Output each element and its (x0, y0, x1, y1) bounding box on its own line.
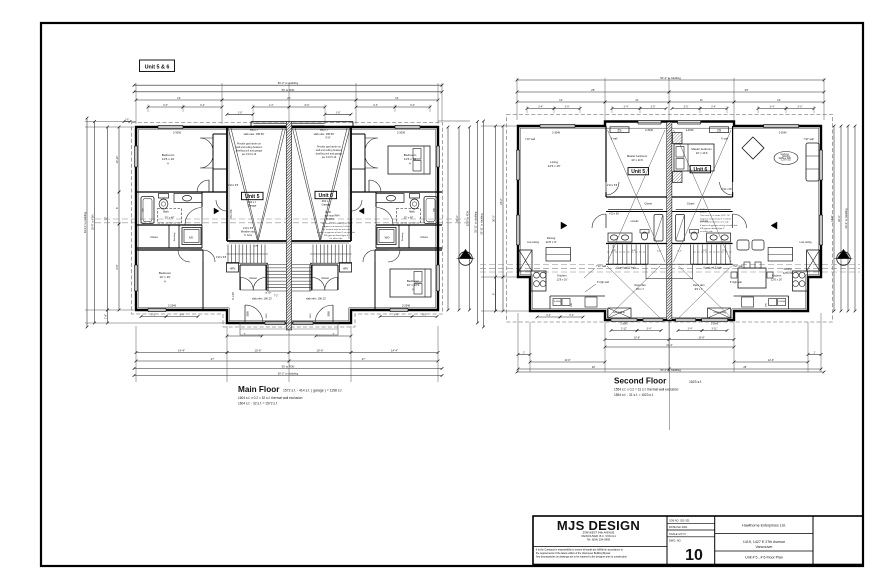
svg-text:6' wall: 6' wall (721, 138, 728, 141)
svg-text:per 9.10.9.16: per 9.10.9.16 (322, 156, 337, 159)
svg-text:12'6 x 16': 12'6 x 16' (771, 277, 782, 281)
svg-text:16 Ra: 16 Ra (700, 209, 707, 211)
svg-text:33'-2" to cladding: 33'-2" to cladding (844, 208, 848, 228)
svg-text:12'6 x 15': 12'6 x 15' (548, 164, 561, 168)
svg-text:14': 14' (395, 96, 399, 100)
svg-text:3'-0": 3'-0" (410, 104, 415, 107)
svg-text:2-3040: 2-3040 (645, 129, 653, 132)
svg-text:1572 s.f. - 414 s.f. ( garage: 1572 s.f. - 414 s.f. ( garage ) = 1158 s… (283, 389, 342, 393)
svg-text:12'6 x 10': 12'6 x 10' (778, 156, 791, 160)
svg-text:2'6 x 6'8: 2'6 x 6'8 (230, 209, 233, 218)
svg-text:Low ceiling: Low ceiling (613, 312, 625, 314)
svg-text:27': 27' (362, 357, 366, 361)
svg-text:10'-8": 10'-8" (634, 337, 640, 340)
svg-text:Garage: Garage (322, 202, 331, 206)
svg-text:1'-6": 1'-6" (125, 120, 130, 122)
svg-text:14': 14' (559, 98, 563, 102)
svg-text:Guard rail 3' high: Guard rail 3' high (703, 267, 723, 270)
svg-text:3068: 3068 (247, 311, 250, 317)
svg-text:5'-8": 5'-8" (703, 250, 707, 252)
svg-text:10'-6": 10'-6" (254, 349, 261, 353)
svg-text:JOB NO. 021-301: JOB NO. 021-301 (669, 518, 690, 522)
svg-text:Unit 6: Unit 6 (693, 167, 707, 173)
svg-text:6' high wall: 6' high wall (730, 281, 742, 284)
svg-text:Unit # 5 , # 6 Floor Plan: Unit # 5 , # 6 Floor Plan (745, 556, 783, 560)
svg-text:11'6 x 10: 11'6 x 10 (162, 157, 175, 161)
svg-text:3'-4": 3'-4" (569, 314, 574, 317)
svg-text:2'10 x 6'8: 2'10 x 6'8 (607, 184, 618, 187)
svg-text:9'-8": 9'-8" (326, 137, 331, 140)
svg-text:32': 32' (103, 216, 107, 220)
svg-text:25': 25' (591, 88, 595, 92)
svg-text:Bath: Bath (163, 210, 169, 214)
svg-text:50'-2" to cladding: 50'-2" to cladding (278, 372, 299, 376)
svg-text:HRV: HRV (343, 267, 349, 271)
svg-text:14': 14' (177, 96, 181, 100)
svg-text:2-3036: 2-3036 (397, 131, 406, 135)
svg-text:4'10 x 6'8: 4'10 x 6'8 (609, 214, 619, 216)
svg-text:492 s.f.: 492 s.f. (248, 200, 257, 204)
svg-text:3'-4": 3'-4" (770, 106, 775, 109)
svg-text:1604 s.f. x 0.2 = 32 s.f. ther: 1604 s.f. x 0.2 = 32 s.f. thermal wall e… (238, 396, 303, 400)
svg-text:2-3040: 2-3040 (620, 324, 628, 326)
svg-text:1554 s.f. - 31 s.f. = 1523 s.f: 1554 s.f. - 31 s.f. = 1523 s.f. (614, 393, 654, 397)
svg-text:9'6 x 7: 9'6 x 7 (636, 287, 644, 291)
svg-text:Dining: Dining (784, 267, 792, 271)
svg-text:Closet: Closet (687, 202, 695, 206)
svg-text:33'-11" to cladding: 33'-11" to cladding (83, 211, 87, 233)
svg-text:9'-6": 9'-6" (116, 264, 119, 269)
svg-text:50' to FDN: 50' to FDN (282, 88, 295, 92)
svg-text:10' x 11'6: 10' x 11'6 (631, 158, 643, 162)
svg-text:1000: 1000 (266, 313, 268, 319)
svg-text:3'-4": 3'-4" (546, 314, 551, 317)
svg-text:11': 11' (700, 98, 704, 102)
svg-text:3'-0": 3'-0" (798, 106, 803, 109)
svg-text:VANCOUVER, B.C. V6N 2L1: VANCOUVER, B.C. V6N 2L1 (581, 534, 616, 538)
svg-text:3'-4": 3'-4" (373, 104, 378, 107)
svg-text:1523 s.f.: 1523 s.f. (689, 380, 702, 384)
svg-text:2-3048: 2-3048 (552, 132, 560, 135)
svg-text:21'-4": 21'-4" (666, 344, 672, 347)
svg-text:2'-6": 2'-6" (104, 314, 107, 319)
svg-text:3'-5": 3'-5" (651, 106, 656, 109)
svg-text:10'-8": 10'-8" (698, 337, 704, 340)
svg-text:Unit 5: Unit 5 (245, 194, 260, 200)
svg-text:30" x 48": 30" x 48" (165, 217, 175, 220)
svg-text:Bath: Bath (409, 210, 415, 214)
svg-text:on other side: on other side (700, 230, 713, 233)
svg-text:6' high wall: 6' high wall (597, 281, 609, 284)
svg-text:12'6 x 16': 12'6 x 16' (557, 277, 568, 281)
svg-text:slab elev. 195.50': slab elev. 195.50' (244, 132, 265, 136)
svg-text:W/D: W/D (385, 237, 390, 240)
svg-text:5'-8": 5'-8" (632, 250, 636, 252)
svg-text:1554 s.f. x 0.2 = 31 s.f. ther: 1554 s.f. x 0.2 = 31 s.f. thermal wall e… (614, 388, 679, 392)
svg-text:Unit 5: Unit 5 (631, 169, 645, 175)
svg-text:24'-2": 24'-2" (500, 198, 503, 204)
svg-text:Second Floor: Second Floor (614, 377, 667, 386)
svg-text:50 5°C: 50 5°C (700, 212, 707, 214)
svg-text:Main Floor: Main Floor (238, 385, 280, 394)
svg-text:2-3040: 2-3040 (711, 324, 719, 326)
svg-text:Hawthorne Enterprises Ltd.: Hawthorne Enterprises Ltd. (742, 524, 786, 528)
svg-text:50' to FDN: 50' to FDN (282, 365, 295, 369)
svg-text:3-3036: 3-3036 (778, 301, 786, 303)
svg-text:ensure in gypsum of two 9' on: ensure in gypsum of two 9' on one side (317, 231, 356, 234)
svg-text:one hour RH4: one hour RH4 (325, 214, 341, 217)
svg-text:2.5" mineral wool on one side: 2.5" mineral wool on one side (700, 221, 729, 224)
svg-text:3'-4": 3'-4" (647, 328, 652, 331)
svg-text:7'10" wall: 7'10" wall (804, 138, 815, 141)
svg-text:3068: 3068 (328, 311, 331, 317)
svg-text:10: 10 (685, 547, 703, 564)
svg-text:A/D: A/D (189, 237, 193, 240)
svg-text:on other side: on other side (330, 237, 343, 240)
svg-text:2S: 2S (717, 129, 722, 133)
svg-text:diagonal cut armoury 1x2mb: diagonal cut armoury 1x2mb (322, 225, 350, 228)
svg-text:2'10 x 6'8: 2'10 x 6'8 (722, 188, 733, 191)
svg-text:Garage: Garage (248, 203, 257, 207)
svg-text:Unit 5 & 6: Unit 5 & 6 (145, 64, 170, 70)
svg-text:S. Core: S. Core (244, 234, 253, 237)
svg-text:3'-0": 3'-0" (565, 106, 570, 109)
svg-text:28': 28' (592, 366, 596, 369)
svg-text:1'-6": 1'-6" (336, 111, 341, 114)
svg-text:22': 22' (287, 96, 291, 100)
svg-text:10' x 10'9: 10' x 10'9 (407, 283, 420, 287)
svg-text:Closet: Closet (644, 202, 652, 206)
svg-text:Two treat 2 x 4 studs @16" oc: Two treat 2 x 4 studs @16" oc (321, 222, 351, 225)
svg-text:3'-11": 3'-11" (712, 328, 718, 331)
svg-text:DATE Feb 2021: DATE Feb 2021 (669, 525, 688, 529)
svg-text:Tel: (604) 254-0995: Tel: (604) 254-0995 (587, 537, 611, 541)
svg-text:4 layers of gypsum ceiling of: 4 layers of gypsum ceiling of white bds (700, 224, 738, 227)
svg-text:32'-9" to FDN: 32'-9" to FDN (465, 211, 469, 227)
svg-text:2'10 x 6'8: 2'10 x 6'8 (228, 184, 239, 187)
svg-text:2-2546: 2-2546 (168, 304, 177, 308)
svg-text:14'-4": 14'-4" (178, 349, 185, 353)
svg-text:DWG. NO.: DWG. NO. (669, 539, 682, 543)
svg-text:50'-2" to cladding: 50'-2" to cladding (660, 368, 681, 372)
svg-text:8'6 x 7: 8'6 x 7 (250, 128, 258, 132)
svg-text:2.5' mineral wool on one side: 2.5' mineral wool on one side (322, 228, 351, 231)
svg-text:SCALE 1/4"=1': SCALE 1/4"=1' (669, 532, 687, 536)
svg-text:10' x 11'6: 10' x 11'6 (696, 151, 708, 155)
svg-text:12'-6": 12'-6" (768, 359, 774, 362)
svg-text:Kitchen: Kitchen (557, 274, 567, 278)
svg-text:♾: ♾ (167, 162, 170, 166)
svg-text:Vancouver: Vancouver (756, 545, 774, 549)
svg-text:492 s.f.: 492 s.f. (322, 199, 331, 203)
svg-text:1'-4": 1'-4" (269, 104, 274, 107)
svg-text:18,757: 18,757 (265, 293, 272, 295)
svg-text:6' x 6'8: 6' x 6'8 (232, 292, 235, 300)
svg-text:2-3036: 2-3036 (173, 131, 182, 135)
svg-text:12'-6": 12'-6" (564, 359, 570, 362)
svg-text:3'-4": 3'-4" (711, 106, 716, 109)
svg-text:2-3040: 2-3040 (779, 132, 787, 135)
svg-text:Low ceiling: Low ceiling (800, 241, 812, 244)
svg-text:♾: ♾ (409, 162, 412, 166)
svg-text:1 low ceiling: 1 low ceiling (713, 312, 726, 314)
svg-text:5/8 gypsum board type X: 5/8 gypsum board type X (324, 234, 349, 237)
svg-text:3'-11": 3'-11" (621, 328, 627, 331)
svg-text:50'-2" to cladding: 50'-2" to cladding (660, 76, 681, 80)
svg-text:7'-2": 7'-2" (274, 296, 279, 298)
svg-text:Closet: Closet (321, 276, 329, 280)
svg-text:B/B: B/B (143, 208, 145, 212)
svg-text:Closet: Closet (249, 276, 257, 280)
svg-text:10' x 10': 10' x 10' (160, 275, 171, 279)
svg-text:7'10" wall: 7'10" wall (596, 265, 607, 268)
svg-text:12'6 x 9': 12'6 x 9' (783, 271, 793, 275)
svg-text:14'-4": 14'-4" (391, 349, 398, 353)
svg-text:♾: ♾ (164, 280, 167, 284)
svg-text:HRV: HRV (230, 267, 236, 271)
svg-text:10'-10": 10'-10" (116, 156, 119, 164)
svg-text:18R: 18R (254, 246, 258, 248)
svg-text:Two treat 2 x 4 studs @16" OC: Two treat 2 x 4 studs @16" OC (700, 214, 731, 217)
svg-text:Washing: Washing (174, 232, 176, 241)
svg-text:33'-11" to cladding: 33'-11" to cladding (473, 211, 477, 233)
svg-text:slab elev. 195.50': slab elev. 195.50' (314, 132, 335, 136)
svg-text:5/8 gypsum board type X: 5/8 gypsum board type X (700, 227, 725, 230)
svg-text:33'-9" to FDN: 33'-9" to FDN (90, 214, 94, 230)
svg-text:1'-6": 1'-6" (238, 111, 243, 114)
svg-text:50'-2" to cladding: 50'-2" to cladding (278, 81, 299, 85)
svg-text:diagonal cut armoury 3 x 5 pla: diagonal cut armoury 3 x 5 plate (700, 217, 732, 220)
svg-text:Washing: Washing (402, 232, 404, 241)
svg-text:14': 14' (777, 98, 781, 102)
svg-text:Low ceiling: Low ceiling (527, 241, 539, 244)
svg-text:12'6 x 9': 12'6 x 9' (546, 240, 557, 244)
svg-text:Closet: Closet (150, 235, 158, 239)
svg-text:1000: 1000 (310, 313, 312, 319)
svg-text:36 BTC: 36 BTC (326, 218, 334, 221)
svg-text:8'-6": 8'-6" (305, 104, 310, 107)
svg-text:per 9.10.9.16: per 9.10.9.16 (242, 153, 257, 156)
svg-text:33'-11" to cladding: 33'-11" to cladding (479, 213, 483, 235)
svg-text:30'-2": 30'-2" (837, 215, 841, 222)
svg-text:Open den: Open den (634, 283, 646, 287)
svg-text:3'-4": 3'-4" (200, 104, 205, 107)
svg-text:Kitchen: Kitchen (772, 274, 782, 278)
svg-text:30'-2": 30'-2" (491, 215, 495, 222)
svg-text:Unit 6: Unit 6 (318, 193, 333, 199)
svg-text:30'-2": 30'-2" (455, 215, 459, 222)
svg-text:11'6 x 10: 11'6 x 10 (404, 157, 417, 161)
svg-text:25': 25' (745, 88, 749, 92)
svg-text:♾: ♾ (412, 288, 415, 292)
svg-text:3'-4": 3'-4" (538, 106, 543, 109)
svg-text:27': 27' (211, 357, 215, 361)
svg-text:1604 s.f. - 32 s.f. = 1572 s.f: 1604 s.f. - 32 s.f. = 1572 s.f. (238, 402, 278, 406)
svg-text:10'-6": 10'-6" (316, 349, 323, 353)
svg-text:6' wall: 6' wall (611, 138, 618, 141)
svg-text:Any discrepancies on drawings: Any discrepancies on drawings are to be … (536, 556, 627, 559)
svg-text:ensuite: ensuite (630, 220, 639, 223)
svg-text:8'6 x 7: 8'6 x 7 (320, 128, 328, 132)
svg-text:Closet: Closet (420, 235, 428, 239)
svg-text:7'10" wall: 7'10" wall (525, 138, 536, 141)
svg-text:2'10 x 6'8: 2'10 x 6'8 (216, 256, 227, 259)
svg-text:9'6 x 7: 9'6 x 7 (695, 287, 703, 291)
svg-text:Guard rail 3' high: Guard rail 3' high (617, 267, 637, 270)
svg-text:2-3040: 2-3040 (686, 129, 694, 132)
svg-text:28': 28' (743, 366, 747, 369)
svg-text:11': 11' (635, 98, 639, 102)
svg-text:7'10" wall: 7'10" wall (733, 265, 744, 268)
svg-text:3788 WEST 34th AVENUE: 3788 WEST 34th AVENUE (583, 530, 615, 534)
svg-text:3'-0": 3'-0" (163, 104, 168, 107)
svg-text:2-2546: 2-2546 (402, 304, 411, 308)
svg-text:3'-4": 3'-4" (624, 106, 629, 109)
svg-text:Open den: Open den (693, 283, 705, 287)
svg-text:slab elev. 196.13': slab elev. 196.13' (252, 297, 272, 301)
svg-text:3'-5": 3'-5" (684, 106, 689, 109)
svg-text:slab elev. 196.13': slab elev. 196.13' (306, 297, 326, 301)
svg-text:3'-4": 3'-4" (688, 328, 693, 331)
svg-text:1419, 1427 E 27th Avenue: 1419, 1427 E 27th Avenue (743, 540, 785, 544)
svg-text:2S: 2S (617, 129, 622, 133)
svg-text:30" x 48": 30" x 48" (404, 217, 414, 220)
svg-text:3-3036: 3-3036 (554, 301, 562, 303)
svg-text:B/B: B/B (433, 208, 435, 212)
